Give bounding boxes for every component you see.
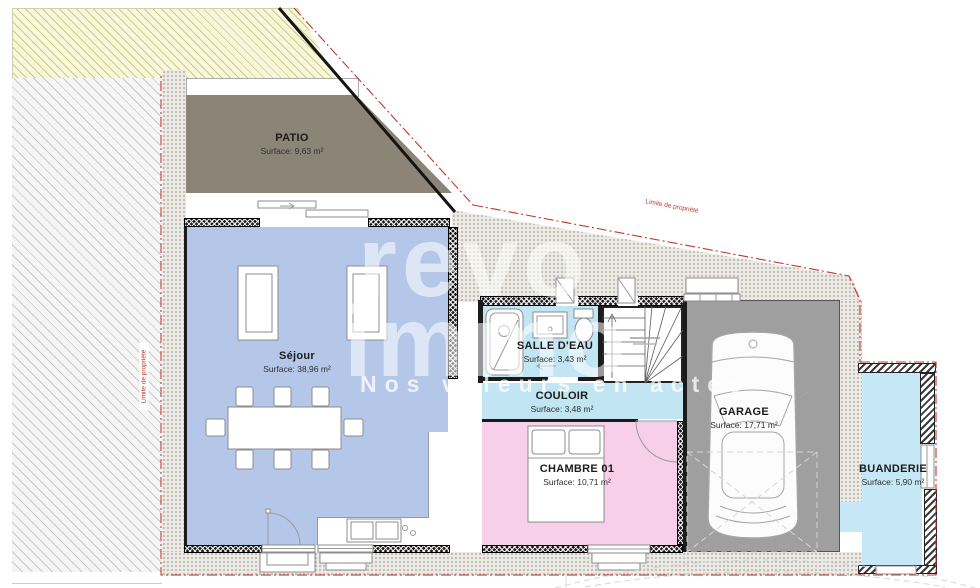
bedroom-window [588,545,650,570]
neighbour-wall-line [279,8,455,212]
room-label-chambre-01: CHAMBRE 01 Surface: 10,71 m² [540,463,615,487]
room-surface: Surface: 38,96 m² [263,364,331,374]
car [698,332,808,538]
plan-linework [0,0,980,588]
room-surface: Surface: 3,48 m² [531,404,594,414]
room-surface: Surface: 17,71 m² [710,420,778,430]
room-name: SALLE D'EAU [517,340,593,352]
boundary-label-left: Limite de propriété [140,343,149,411]
stairs [602,306,683,383]
room-name: COULOIR [531,390,594,402]
room-label-sejour: Séjour Surface: 38,96 m² [263,350,331,374]
sliding-door [258,201,368,217]
toilet [574,309,593,342]
room-label-garage: GARAGE Surface: 17,71 m² [710,406,778,430]
room-name: CHAMBRE 01 [540,463,615,475]
entry-door-arc [266,509,300,545]
room-surface: Surface: 3,43 m² [517,354,593,364]
room-surface: Surface: 10,71 m² [540,477,615,487]
floor-plan-canvas: revo immo Nos valeurs en actes PATIO Sur… [0,0,980,588]
room-name: BUANDERIE [859,463,927,475]
room-label-patio: PATIO Surface: 9,63 m² [261,132,324,156]
kitchen-sink [347,519,416,542]
room-name: Séjour [263,350,331,362]
terrace-door [556,278,635,303]
room-name: GARAGE [710,406,778,418]
garage-door [684,278,740,301]
room-surface: Surface: 5,90 m² [859,477,927,487]
room-name: PATIO [261,132,324,144]
sofa [347,266,387,340]
washbasin [533,312,567,338]
sofa [238,266,278,340]
bedroom-door-arc [636,421,677,462]
room-label-couloir: COULOIR Surface: 3,48 m² [531,390,594,414]
porch-steps [260,545,373,572]
room-surface: Surface: 9,63 m² [261,146,324,156]
dining-table-and-chairs [206,387,363,469]
room-label-salle-deau: SALLE D'EAU Surface: 3,43 m² [517,340,593,364]
room-label-buanderie: BUANDERIE Surface: 5,90 m² [859,463,927,487]
buanderie-door [876,566,916,574]
